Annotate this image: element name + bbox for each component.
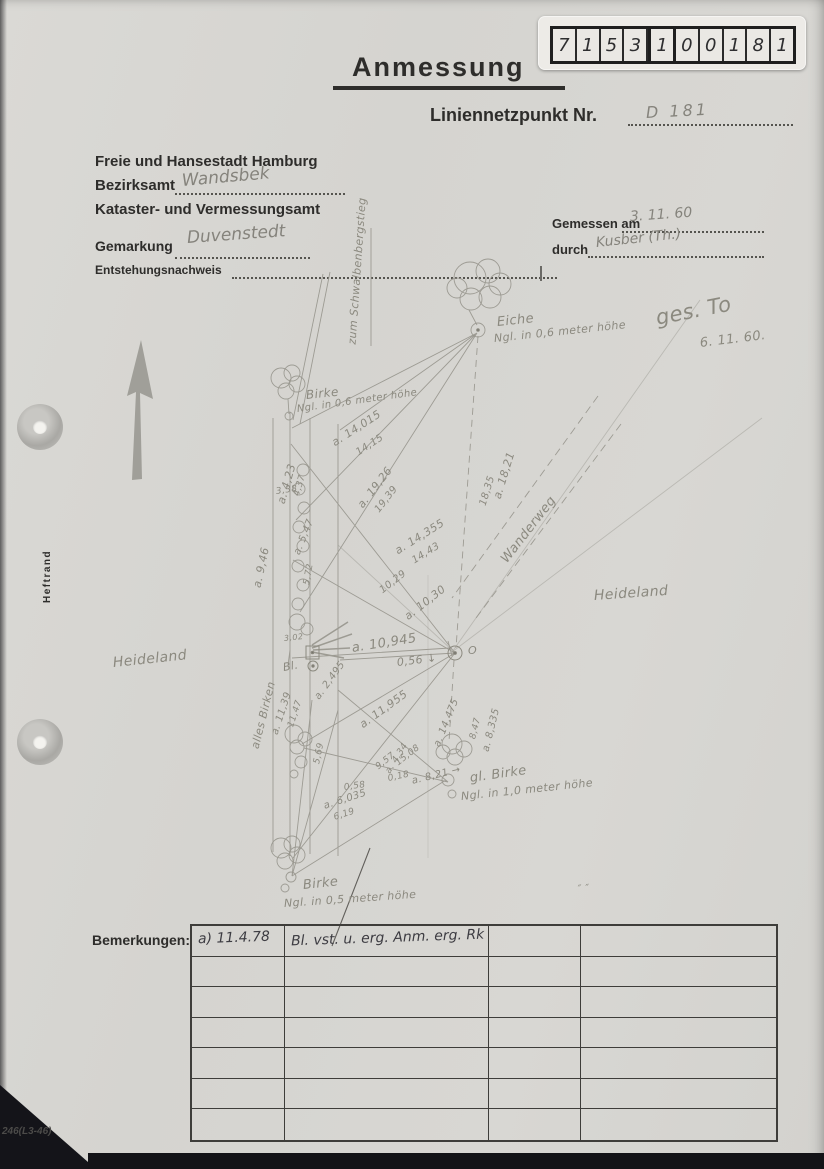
remarks-cell bbox=[581, 987, 776, 1018]
point-number-value: D 181 bbox=[646, 100, 710, 122]
bemerkungen-label: Bemerkungen: bbox=[92, 932, 190, 948]
remarks-cell bbox=[192, 957, 285, 988]
remarks-table: a) 11.4.78Bl. vst. u. erg. Anm. erg. Rk bbox=[190, 924, 778, 1142]
remarks-cell bbox=[489, 1079, 581, 1110]
stamp-digit: 3 bbox=[624, 29, 648, 61]
scanned-survey-form: Heftrand 246(L3-46) 7 1 5 3 1 0 0 1 8 1 … bbox=[0, 0, 824, 1169]
gemessen-am-value: 3. 11. 60 bbox=[629, 205, 692, 225]
remarks-cell bbox=[192, 987, 285, 1018]
sketch-label: 6,19 bbox=[332, 807, 356, 823]
sketch-label: Birke bbox=[305, 385, 339, 402]
page-title: Anmessung bbox=[352, 52, 525, 83]
remarks-cell bbox=[581, 1018, 776, 1049]
sketch-label: 4,37 bbox=[292, 474, 308, 498]
remarks-cell bbox=[192, 1109, 285, 1140]
stamp-digit: 1 bbox=[648, 29, 676, 61]
sketch-label: Heideland bbox=[593, 583, 668, 604]
sketch-label: Bl. bbox=[282, 658, 299, 673]
stamp-digit: 0 bbox=[700, 29, 724, 61]
remarks-cell bbox=[489, 1048, 581, 1079]
gemessen-am-label: Gemessen am bbox=[552, 216, 640, 231]
sketch-label: a. 2,495 bbox=[313, 659, 348, 701]
sketch-label: 10,29 bbox=[378, 568, 409, 596]
tree-symbols bbox=[271, 259, 511, 892]
sketch-label: Ngl. in 0,6 meter höhe bbox=[296, 387, 418, 415]
agency-office-line: Kataster- und Vermessungsamt bbox=[95, 201, 320, 218]
rule-tick bbox=[540, 266, 542, 281]
sketch-label: a. 18,21 bbox=[491, 450, 518, 500]
sketch-label: 3,02 bbox=[284, 632, 304, 643]
scan-bottom-edge bbox=[88, 1153, 824, 1169]
heftrand-label: Heftrand bbox=[42, 550, 53, 603]
bezirksamt-label: Bezirksamt bbox=[95, 177, 175, 194]
stamp-digit: 1 bbox=[577, 29, 601, 61]
remarks-cell bbox=[489, 926, 581, 957]
stamp-digit: 1 bbox=[771, 29, 793, 61]
sketch-label: 15,08 bbox=[394, 743, 422, 768]
bezirksamt-rule bbox=[175, 193, 345, 195]
sketch-label: a. 14,355 bbox=[393, 516, 447, 557]
remarks-cell bbox=[581, 1079, 776, 1110]
remarks-cell bbox=[192, 1048, 285, 1079]
sketch-label: 5,69 bbox=[312, 742, 326, 765]
sketch-label: Ngl. in 0,5 meter höhe bbox=[284, 888, 417, 910]
sketch-label: Ngl. in 0,6 meter höhe bbox=[493, 318, 626, 345]
sketch-label: a. 14,015 bbox=[329, 408, 383, 449]
sketch-label: a. 10,945 bbox=[351, 631, 418, 656]
remarks-cell bbox=[489, 1109, 581, 1140]
remarks-cell bbox=[285, 987, 489, 1018]
remarks-cell bbox=[489, 957, 581, 988]
sketch-label: a. 5,47 bbox=[292, 518, 316, 557]
sketch-label: Birke bbox=[302, 874, 339, 893]
remarks-handwriting: a) 11.4.78 bbox=[198, 929, 270, 948]
remarks-cell bbox=[489, 987, 581, 1018]
sketch-label: 3,38 bbox=[275, 484, 298, 497]
entstehungsnachweis-rule bbox=[232, 277, 557, 279]
sketch-label: a. 8,335 bbox=[481, 707, 502, 753]
sketch-label: Wanderweg bbox=[498, 493, 559, 566]
sketch-label: a. 11,955 bbox=[357, 687, 410, 730]
sketch-label: a. 14,475 bbox=[432, 697, 461, 748]
form-code: 246(L3-46) bbox=[2, 1126, 51, 1137]
stamp-digit: 8 bbox=[747, 29, 771, 61]
title-underline bbox=[333, 86, 565, 90]
durch-label: durch bbox=[552, 242, 588, 257]
sketch-label: Heideland bbox=[112, 647, 188, 671]
entstehungsnachweis-label: Entstehungsnachweis bbox=[95, 263, 222, 277]
remarks-cell: Bl. vst. u. erg. Anm. erg. Rk bbox=[285, 926, 489, 957]
hole-punch-top bbox=[17, 404, 63, 450]
remarks-cell bbox=[285, 1079, 489, 1110]
stamp-digit: 5 bbox=[601, 29, 625, 61]
scan-left-edge bbox=[0, 0, 7, 1169]
stamp-digit: 1 bbox=[724, 29, 748, 61]
remarks-cell bbox=[581, 957, 776, 988]
sketch-label: 19,39 bbox=[373, 484, 401, 515]
sketch-label: a. 10,30 bbox=[402, 583, 448, 623]
sketch-label: 11,47 bbox=[286, 699, 304, 728]
sketch-label: a. 4,34 bbox=[384, 741, 411, 775]
remarks-cell: a) 11.4.78 bbox=[192, 926, 285, 957]
remarks-cell bbox=[581, 1048, 776, 1079]
point-number-rule bbox=[628, 124, 793, 126]
sketch-label: 14,15 bbox=[354, 432, 386, 458]
sketch-label: 5,72 bbox=[302, 563, 316, 586]
stamp-digit: 0 bbox=[676, 29, 700, 61]
remarks-cell bbox=[192, 1079, 285, 1110]
sketch-label: ges. To bbox=[654, 292, 734, 330]
sketch-label: gl. Birke bbox=[469, 763, 528, 786]
sketch-label: a. 19,26 bbox=[355, 464, 395, 510]
sketch-label: 8,47 bbox=[468, 717, 483, 740]
north-arrow bbox=[127, 340, 153, 480]
sketch-label: 0,56 ↓ bbox=[396, 651, 437, 669]
sketch-label: zum Schwalbenbergstieg bbox=[346, 197, 369, 345]
sketch-label: 14,43 bbox=[410, 541, 442, 567]
sketch-label: a. 4,23 bbox=[275, 462, 299, 505]
remarks-cell bbox=[581, 926, 776, 957]
remarks-handwriting: Bl. vst. u. erg. Anm. erg. Rk bbox=[291, 927, 485, 950]
sketch-label: ″ ″ bbox=[578, 883, 591, 895]
remarks-cell bbox=[489, 1018, 581, 1049]
sketch-label: 6. 11. 60. bbox=[699, 328, 766, 351]
sketch-label: a. 11,39 bbox=[270, 691, 294, 737]
sketch-label: a. 6,035 bbox=[322, 788, 368, 812]
durch-rule bbox=[588, 256, 764, 258]
index-number-stamp: 7 1 5 3 1 0 0 1 8 1 bbox=[538, 16, 806, 70]
sketch-label: 18,35 bbox=[478, 475, 497, 508]
agency-city-line: Freie und Hansestadt Hamburg bbox=[95, 153, 318, 170]
sketch-label: O bbox=[468, 644, 477, 657]
sketch-label: Eiche bbox=[496, 311, 535, 330]
sketch-label: a. 9,46 bbox=[251, 546, 272, 589]
remarks-cell bbox=[192, 1018, 285, 1049]
sketch-label: a. 8,21 → bbox=[411, 764, 462, 787]
survey-point-marks bbox=[306, 329, 479, 671]
sketch-label: Ngl. in 1,0 meter höhe bbox=[460, 776, 593, 803]
sketch-label: alles Birken bbox=[249, 680, 278, 750]
hole-punch-bottom bbox=[17, 719, 63, 765]
remarks-cell bbox=[581, 1109, 776, 1140]
remarks-cell bbox=[285, 1048, 489, 1079]
sketch-label: 9,57 bbox=[374, 751, 397, 772]
stamp-digit-boxes: 7 1 5 3 1 0 0 1 8 1 bbox=[550, 26, 796, 64]
remarks-cell bbox=[285, 957, 489, 988]
point-number-label: Liniennetzpunkt Nr. bbox=[430, 105, 597, 126]
remarks-cell bbox=[285, 1018, 489, 1049]
sketch-label: 0,18 bbox=[387, 770, 410, 784]
sketch-label: 0,58 bbox=[343, 780, 366, 793]
remarks-cell bbox=[285, 1109, 489, 1140]
gemarkung-value: Duvenstedt bbox=[186, 221, 286, 248]
stamp-digit: 7 bbox=[553, 29, 577, 61]
gemarkung-rule bbox=[175, 257, 310, 259]
gemarkung-label: Gemarkung bbox=[95, 238, 173, 254]
